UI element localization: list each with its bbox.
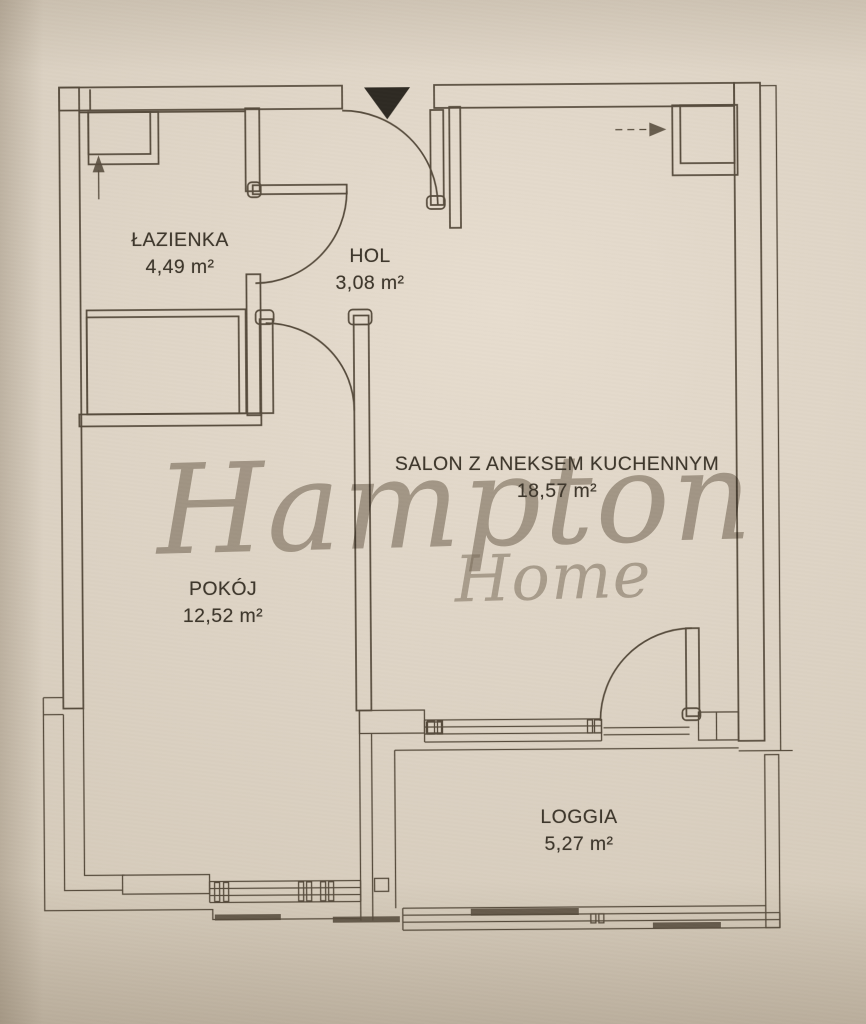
room-label-pokoj: POKÓJ 12,52 m²: [183, 576, 263, 630]
outer-walls: [59, 83, 793, 756]
arrow-up-icon: [93, 155, 105, 199]
room-label-hol: HOL 3,08 m²: [336, 243, 405, 297]
entrance-door: [342, 107, 461, 229]
room-name: HOL: [336, 243, 405, 270]
room-label-loggia: LOGGIA 5,27 m²: [540, 804, 617, 858]
room-name: SALON Z ANEKSEM KUCHENNYM: [395, 451, 719, 478]
arrow-right-icon: [615, 122, 666, 136]
room-area: 4,49 m²: [131, 254, 228, 281]
room-area: 18,57 m²: [395, 478, 719, 505]
room-name: POKÓJ: [183, 576, 263, 603]
room-label-lazienka: ŁAZIENKA 4,49 m²: [131, 227, 228, 281]
bathroom-door: [248, 182, 348, 284]
room-name: ŁAZIENKA: [131, 227, 228, 254]
room-area: 5,27 m²: [540, 831, 617, 858]
balcony-door: [600, 628, 701, 721]
salon-niche: [672, 105, 737, 175]
floor-plan-photo: Hampton Home ŁAZIENKA 4,49 m² HOL 3,08 m…: [0, 0, 866, 1024]
room-label-salon: SALON Z ANEKSEM KUCHENNYM 18,57 m²: [395, 451, 719, 505]
room-area: 12,52 m²: [183, 603, 263, 630]
room-door: [256, 310, 355, 414]
floor-plan-drawing: [0, 0, 866, 1024]
room-area: 3,08 m²: [336, 270, 405, 297]
room-name: LOGGIA: [540, 804, 617, 831]
room-salon-wall: [349, 309, 375, 710]
room-south-window: [43, 695, 389, 920]
